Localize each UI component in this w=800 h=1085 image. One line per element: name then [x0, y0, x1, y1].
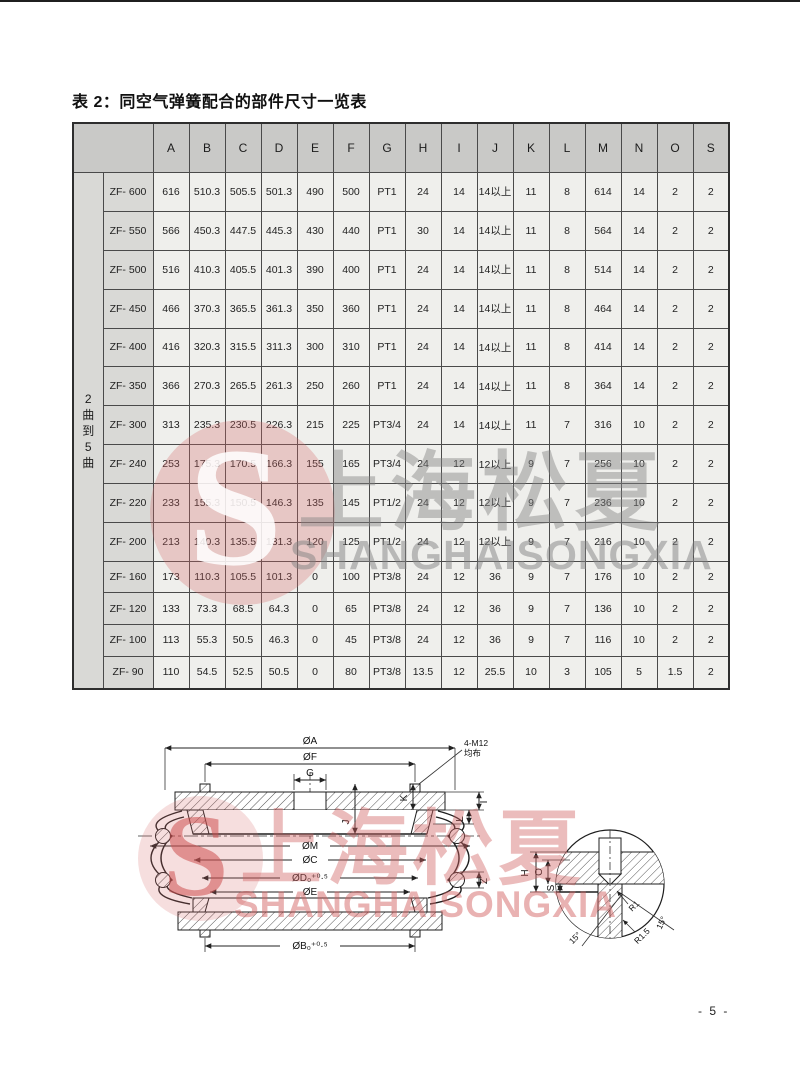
value-cell: 2 [693, 367, 729, 406]
value-cell: 135 [297, 484, 333, 523]
value-cell: 366 [153, 367, 189, 406]
value-cell: PT1 [369, 328, 405, 367]
value-cell: 50.5 [261, 656, 297, 689]
bead-ring [450, 829, 465, 844]
value-cell: 14 [441, 289, 477, 328]
row-group-label: 2曲到5曲 [73, 173, 103, 690]
value-cell: 230.5 [225, 406, 261, 445]
dim-l: L [433, 810, 474, 824]
value-cell: 113 [153, 624, 189, 656]
table-row: ZF- 240253175.3170.5166.3155165PT3/42412… [73, 445, 729, 484]
table-row: ZF- 500516410.3405.5401.3390400PT1241414… [73, 250, 729, 289]
value-cell: 8 [549, 173, 585, 212]
value-cell: 155 [297, 445, 333, 484]
value-cell: 14以上 [477, 173, 513, 212]
value-cell: 120 [297, 522, 333, 561]
value-cell: 11 [513, 367, 549, 406]
column-header-K: K [513, 123, 549, 173]
header-blank-cell [73, 123, 153, 173]
value-cell: 10 [621, 624, 657, 656]
value-cell: 52.5 [225, 656, 261, 689]
value-cell: 145 [333, 484, 369, 523]
value-cell: 12以上 [477, 445, 513, 484]
value-cell: 65 [333, 593, 369, 625]
value-cell: 505.5 [225, 173, 261, 212]
value-cell: 9 [513, 593, 549, 625]
value-cell: 236 [585, 484, 621, 523]
dim-label-h: H [520, 869, 531, 876]
parts-dimension-table: ABCDEFGHIJKLMNOS 2曲到5曲ZF- 600616510.3505… [72, 122, 730, 690]
value-cell: PT1 [369, 250, 405, 289]
column-header-O: O [657, 123, 693, 173]
table-row: ZF- 200213140.3135.5131.3120125PT1/22412… [73, 522, 729, 561]
value-cell: 133 [153, 593, 189, 625]
value-cell: PT1 [369, 289, 405, 328]
bolt-left [200, 784, 210, 792]
value-cell: 10 [621, 522, 657, 561]
value-cell: 401.3 [261, 250, 297, 289]
value-cell: 12以上 [477, 484, 513, 523]
bottom-bolt-left [200, 930, 210, 937]
column-header-I: I [441, 123, 477, 173]
dim-label-s: S [546, 884, 557, 891]
value-cell: 175.3 [189, 445, 225, 484]
value-cell: 24 [405, 445, 441, 484]
value-cell: PT1/2 [369, 522, 405, 561]
value-cell: PT3/8 [369, 561, 405, 593]
value-cell: 1.5 [657, 656, 693, 689]
value-cell: 2 [693, 561, 729, 593]
value-cell: 213 [153, 522, 189, 561]
value-cell: 12 [441, 593, 477, 625]
table-row: ZF- 300313235.3230.5226.3215225PT3/42414… [73, 406, 729, 445]
column-header-F: F [333, 123, 369, 173]
value-cell: 10 [621, 593, 657, 625]
value-cell: 14 [621, 211, 657, 250]
value-cell: 146.3 [261, 484, 297, 523]
dim-label-k: K [399, 794, 410, 801]
dim-i: I [445, 792, 490, 810]
value-cell: 2 [657, 445, 693, 484]
column-header-C: C [225, 123, 261, 173]
model-cell: ZF- 500 [103, 250, 153, 289]
bolt-right [410, 784, 420, 792]
value-cell: 9 [513, 445, 549, 484]
value-cell: 14以上 [477, 250, 513, 289]
value-cell: 14 [441, 250, 477, 289]
dim-label-od: ØD₀⁺⁰·⁵ [292, 873, 328, 884]
value-cell: 140.3 [189, 522, 225, 561]
value-cell: 14 [621, 289, 657, 328]
value-cell: 466 [153, 289, 189, 328]
value-cell: 261.3 [261, 367, 297, 406]
value-cell: 501.3 [261, 173, 297, 212]
model-cell: ZF- 100 [103, 624, 153, 656]
model-cell: ZF- 220 [103, 484, 153, 523]
value-cell: 447.5 [225, 211, 261, 250]
value-cell: 2 [693, 289, 729, 328]
dim-label-of: ØF [303, 752, 317, 763]
value-cell: 7 [549, 624, 585, 656]
column-header-B: B [189, 123, 225, 173]
value-cell: 24 [405, 484, 441, 523]
dim-om: ØM [150, 839, 470, 852]
value-cell: 2 [693, 484, 729, 523]
value-cell: 2 [693, 445, 729, 484]
dim-label-om: ØM [302, 841, 318, 852]
value-cell: 8 [549, 289, 585, 328]
dim-label-i: I [479, 801, 490, 804]
dim-oe: ØE [210, 885, 410, 898]
value-cell: 24 [405, 624, 441, 656]
air-spring-section-view: ØA ØF G 4-M12 均布 [138, 736, 490, 952]
value-cell: 614 [585, 173, 621, 212]
table-row: ZF- 220233155.3150.5146.3135145PT1/22412… [73, 484, 729, 523]
value-cell: 3 [549, 656, 585, 689]
value-cell: 464 [585, 289, 621, 328]
value-cell: 440 [333, 211, 369, 250]
value-cell: 256 [585, 445, 621, 484]
value-cell: 0 [297, 561, 333, 593]
model-cell: ZF- 200 [103, 522, 153, 561]
value-cell: 80 [333, 656, 369, 689]
value-cell: 24 [405, 289, 441, 328]
value-cell: 2 [693, 328, 729, 367]
bottom-plate [178, 898, 442, 937]
model-cell: ZF- 350 [103, 367, 153, 406]
value-cell: 405.5 [225, 250, 261, 289]
dim-oa: ØA [165, 736, 455, 790]
value-cell: 116 [585, 624, 621, 656]
value-cell: 510.3 [189, 173, 225, 212]
model-cell: ZF- 400 [103, 328, 153, 367]
value-cell: 253 [153, 445, 189, 484]
value-cell: 12 [441, 561, 477, 593]
value-cell: 14以上 [477, 367, 513, 406]
value-cell: 616 [153, 173, 189, 212]
bolt-note-line2: 均布 [464, 748, 481, 758]
column-header-E: E [297, 123, 333, 173]
bead-ring [156, 873, 171, 888]
value-cell: 0 [297, 656, 333, 689]
value-cell: 315.5 [225, 328, 261, 367]
value-cell: 2 [657, 289, 693, 328]
note-label-angle-left: 15° [567, 930, 583, 946]
value-cell: 14以上 [477, 289, 513, 328]
value-cell: 2 [693, 624, 729, 656]
bottom-bolt-right [410, 930, 420, 937]
detail-circle-view: H O S R1 R1.5 15° [520, 830, 674, 946]
value-cell: 235.3 [189, 406, 225, 445]
note-label-angle-right: 15° [654, 915, 668, 931]
value-cell: 361.3 [261, 289, 297, 328]
column-header-A: A [153, 123, 189, 173]
value-cell: 64.3 [261, 593, 297, 625]
value-cell: 2 [657, 484, 693, 523]
dim-label-z: Z [479, 878, 490, 884]
column-header-N: N [621, 123, 657, 173]
value-cell: 131.3 [261, 522, 297, 561]
model-cell: ZF- 450 [103, 289, 153, 328]
page-title: 表 2：同空气弹簧配合的部件尺寸一览表 [72, 88, 367, 112]
value-cell: 7 [549, 522, 585, 561]
value-cell: 0 [297, 624, 333, 656]
value-cell: 2 [657, 561, 693, 593]
value-cell: 14以上 [477, 211, 513, 250]
value-cell: 14 [441, 173, 477, 212]
column-header-S: S [693, 123, 729, 173]
value-cell: 564 [585, 211, 621, 250]
value-cell: 166.3 [261, 445, 297, 484]
value-cell: 225 [333, 406, 369, 445]
column-header-G: G [369, 123, 405, 173]
value-cell: 30 [405, 211, 441, 250]
value-cell: 370.3 [189, 289, 225, 328]
column-header-M: M [585, 123, 621, 173]
value-cell: 265.5 [225, 367, 261, 406]
value-cell: 14 [441, 211, 477, 250]
value-cell: PT1 [369, 367, 405, 406]
model-cell: ZF- 160 [103, 561, 153, 593]
value-cell: 10 [621, 406, 657, 445]
value-cell: 150.5 [225, 484, 261, 523]
value-cell: 24 [405, 561, 441, 593]
value-cell: 14 [441, 328, 477, 367]
value-cell: 2 [693, 522, 729, 561]
value-cell: 350 [297, 289, 333, 328]
value-cell: 400 [333, 250, 369, 289]
value-cell: 12 [441, 624, 477, 656]
value-cell: 2 [657, 173, 693, 212]
model-cell: ZF- 240 [103, 445, 153, 484]
value-cell: 313 [153, 406, 189, 445]
value-cell: PT1 [369, 173, 405, 212]
value-cell: 55.3 [189, 624, 225, 656]
bead-ring [156, 829, 171, 844]
table-row: ZF- 12013373.368.564.3065PT3/82412369713… [73, 593, 729, 625]
value-cell: 8 [549, 367, 585, 406]
value-cell: 170.5 [225, 445, 261, 484]
dim-label-o: O [534, 868, 545, 876]
dim-label-oe: ØE [303, 887, 318, 898]
value-cell: 364 [585, 367, 621, 406]
model-cell: ZF- 550 [103, 211, 153, 250]
value-cell: 11 [513, 289, 549, 328]
value-cell: 125 [333, 522, 369, 561]
value-cell: 9 [513, 624, 549, 656]
value-cell: 9 [513, 522, 549, 561]
value-cell: 5 [621, 656, 657, 689]
dim-label-oc: ØC [303, 855, 318, 866]
value-cell: 13.5 [405, 656, 441, 689]
table-row: ZF- 550566450.3447.5445.3430440PT1301414… [73, 211, 729, 250]
value-cell: 14 [621, 173, 657, 212]
value-cell: 450.3 [189, 211, 225, 250]
column-header-L: L [549, 123, 585, 173]
value-cell: 165 [333, 445, 369, 484]
value-cell: 36 [477, 624, 513, 656]
dim-ob: ØB₀⁺⁰·⁵ [205, 938, 415, 952]
value-cell: 105 [585, 656, 621, 689]
value-cell: 260 [333, 367, 369, 406]
value-cell: 2 [657, 593, 693, 625]
value-cell: 270.3 [189, 367, 225, 406]
value-cell: 14 [621, 250, 657, 289]
value-cell: 24 [405, 328, 441, 367]
value-cell: 430 [297, 211, 333, 250]
technical-diagram: ØA ØF G 4-M12 均布 [130, 734, 690, 974]
value-cell: 36 [477, 593, 513, 625]
page-number: - 5 - [698, 1004, 729, 1018]
value-cell: 135.5 [225, 522, 261, 561]
value-cell: 11 [513, 328, 549, 367]
value-cell: PT1/2 [369, 484, 405, 523]
dim-label-g: G [306, 768, 314, 779]
value-cell: 24 [405, 367, 441, 406]
table-row: ZF- 160173110.3105.5101.30100PT3/8241236… [73, 561, 729, 593]
value-cell: 110 [153, 656, 189, 689]
value-cell: 310 [333, 328, 369, 367]
value-cell: 24 [405, 173, 441, 212]
value-cell: 490 [297, 173, 333, 212]
value-cell: 101.3 [261, 561, 297, 593]
value-cell: 416 [153, 328, 189, 367]
value-cell: 445.3 [261, 211, 297, 250]
value-cell: 11 [513, 250, 549, 289]
value-cell: 7 [549, 445, 585, 484]
value-cell: 8 [549, 328, 585, 367]
value-cell: 2 [693, 211, 729, 250]
bolt-note: 4-M12 均布 [419, 738, 488, 784]
value-cell: 2 [693, 593, 729, 625]
value-cell: 155.3 [189, 484, 225, 523]
table-row: 2曲到5曲ZF- 600616510.3505.5501.3490500PT12… [73, 173, 729, 212]
value-cell: 215 [297, 406, 333, 445]
value-cell: 24 [405, 250, 441, 289]
value-cell: 8 [549, 250, 585, 289]
value-cell: 250 [297, 367, 333, 406]
value-cell: 12 [441, 656, 477, 689]
value-cell: PT3/4 [369, 445, 405, 484]
dim-oc: ØC [194, 853, 426, 866]
table-row: ZF- 450466370.3365.5361.3350360PT1241414… [73, 289, 729, 328]
value-cell: 14以上 [477, 406, 513, 445]
value-cell: 73.3 [189, 593, 225, 625]
value-cell: 10 [513, 656, 549, 689]
dim-label-ob: ØB₀⁺⁰·⁵ [292, 941, 327, 952]
value-cell: 176 [585, 561, 621, 593]
top-inner-pan [187, 810, 433, 834]
value-cell: 7 [549, 561, 585, 593]
value-cell: 24 [405, 522, 441, 561]
value-cell: 2 [657, 522, 693, 561]
value-cell: PT3/8 [369, 624, 405, 656]
value-cell: 2 [657, 328, 693, 367]
value-cell: 46.3 [261, 624, 297, 656]
value-cell: 2 [657, 250, 693, 289]
value-cell: 105.5 [225, 561, 261, 593]
value-cell: 36 [477, 561, 513, 593]
value-cell: 24 [405, 593, 441, 625]
value-cell: 14 [441, 367, 477, 406]
value-cell: 11 [513, 406, 549, 445]
value-cell: 2 [657, 367, 693, 406]
dim-label-j: J [341, 820, 352, 825]
value-cell: 11 [513, 211, 549, 250]
column-header-D: D [261, 123, 297, 173]
table-row: ZF- 350366270.3265.5261.3250260PT1241414… [73, 367, 729, 406]
value-cell: 25.5 [477, 656, 513, 689]
value-cell: 24 [405, 406, 441, 445]
model-cell: ZF- 120 [103, 593, 153, 625]
model-cell: ZF- 300 [103, 406, 153, 445]
column-header-H: H [405, 123, 441, 173]
value-cell: 11 [513, 173, 549, 212]
value-cell: 14 [621, 328, 657, 367]
value-cell: 2 [693, 250, 729, 289]
value-cell: 10 [621, 561, 657, 593]
value-cell: 10 [621, 445, 657, 484]
value-cell: 45 [333, 624, 369, 656]
value-cell: 50.5 [225, 624, 261, 656]
value-cell: 173 [153, 561, 189, 593]
value-cell: 14 [441, 406, 477, 445]
value-cell: 8 [549, 211, 585, 250]
value-cell: 12 [441, 522, 477, 561]
value-cell: 2 [693, 173, 729, 212]
value-cell: 320.3 [189, 328, 225, 367]
value-cell: 2 [657, 624, 693, 656]
bolt-note-line1: 4-M12 [464, 738, 488, 748]
bead-ring [450, 873, 465, 888]
value-cell: 566 [153, 211, 189, 250]
value-cell: PT3/8 [369, 593, 405, 625]
value-cell: 14 [621, 367, 657, 406]
value-cell: 7 [549, 593, 585, 625]
document-page: 表 2：同空气弹簧配合的部件尺寸一览表 ABCDEFGHIJKLMNOS 2曲到… [0, 0, 800, 1085]
value-cell: 226.3 [261, 406, 297, 445]
value-cell: 500 [333, 173, 369, 212]
value-cell: 2 [693, 406, 729, 445]
value-cell: 300 [297, 328, 333, 367]
model-cell: ZF- 90 [103, 656, 153, 689]
value-cell: 54.5 [189, 656, 225, 689]
center-hole [294, 792, 326, 810]
value-cell: 316 [585, 406, 621, 445]
table-row: ZF- 9011054.552.550.5080PT3/813.51225.51… [73, 656, 729, 689]
table-row: ZF- 400416320.3315.5311.3300310PT1241414… [73, 328, 729, 367]
value-cell: 68.5 [225, 593, 261, 625]
value-cell: 7 [549, 406, 585, 445]
parts-table-body: 2曲到5曲ZF- 600616510.3505.5501.3490500PT12… [73, 173, 729, 690]
table-row: ZF- 10011355.350.546.3045PT3/82412369711… [73, 624, 729, 656]
value-cell: 516 [153, 250, 189, 289]
value-cell: 136 [585, 593, 621, 625]
value-cell: PT3/4 [369, 406, 405, 445]
value-cell: PT3/8 [369, 656, 405, 689]
dim-od: ØD₀⁺⁰·⁵ [202, 871, 418, 884]
value-cell: 2 [693, 656, 729, 689]
dim-label-oa: ØA [303, 736, 318, 747]
value-cell: 2 [657, 211, 693, 250]
value-cell: 12 [441, 484, 477, 523]
value-cell: 514 [585, 250, 621, 289]
table-header-row: ABCDEFGHIJKLMNOS [73, 123, 729, 173]
value-cell: 365.5 [225, 289, 261, 328]
value-cell: 233 [153, 484, 189, 523]
value-cell: PT1 [369, 211, 405, 250]
value-cell: 414 [585, 328, 621, 367]
